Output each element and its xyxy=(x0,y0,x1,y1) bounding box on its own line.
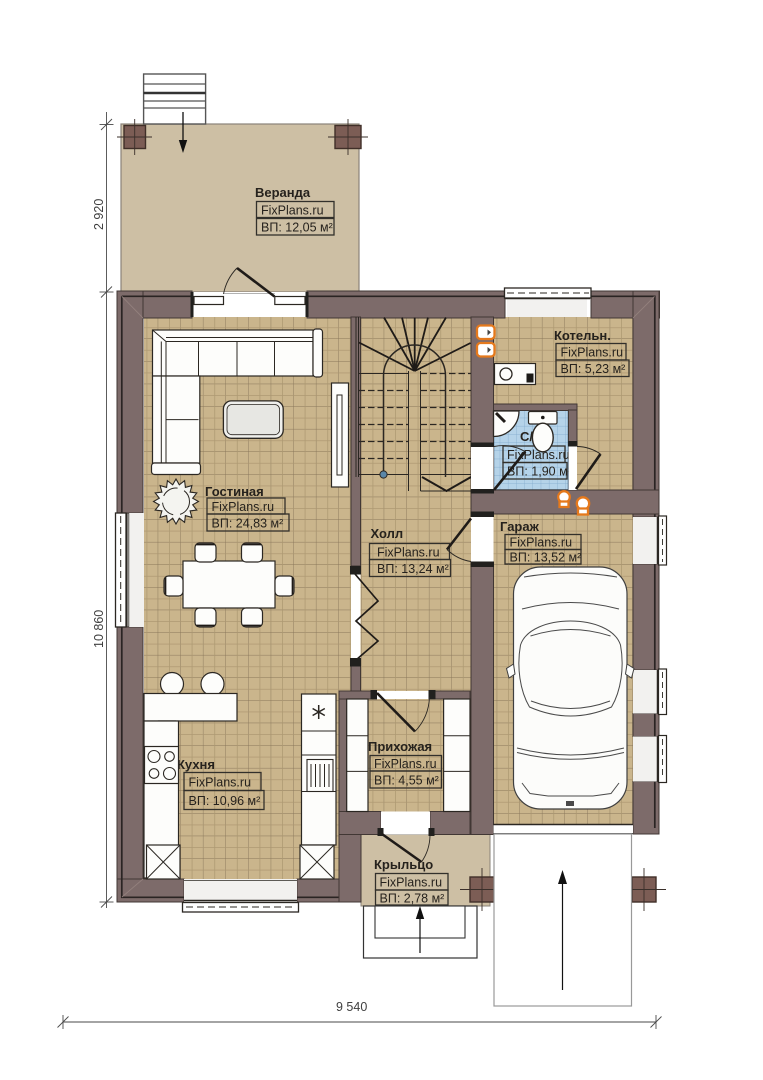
svg-text:FixPlans.ru: FixPlans.ru xyxy=(510,536,573,550)
svg-text:ВП: 12,05 м²: ВП: 12,05 м² xyxy=(261,221,333,235)
svg-text:ВП: 4,55 м²: ВП: 4,55 м² xyxy=(374,774,439,788)
svg-text:Кухня: Кухня xyxy=(177,757,215,772)
svg-text:ВП: 13,52 м²: ВП: 13,52 м² xyxy=(510,551,582,565)
svg-text:Котельн.: Котельн. xyxy=(554,328,611,343)
svg-text:FixPlans.ru: FixPlans.ru xyxy=(374,757,437,771)
svg-text:Прихожая: Прихожая xyxy=(368,739,432,754)
svg-text:ВП: 1,90 м²: ВП: 1,90 м² xyxy=(507,465,572,479)
svg-text:Холл: Холл xyxy=(371,526,404,541)
svg-text:ВП: 10,96 м²: ВП: 10,96 м² xyxy=(189,794,261,808)
svg-text:Гостиная: Гостиная xyxy=(205,484,264,499)
svg-text:FixPlans.ru: FixPlans.ru xyxy=(261,204,324,218)
svg-text:FixPlans.ru: FixPlans.ru xyxy=(189,776,252,790)
svg-text:FixPlans.ru: FixPlans.ru xyxy=(377,546,440,560)
svg-text:9 540: 9 540 xyxy=(336,1000,367,1014)
svg-text:Веранда: Веранда xyxy=(255,185,311,200)
svg-text:FixPlans.ru: FixPlans.ru xyxy=(212,500,275,514)
svg-text:10 860: 10 860 xyxy=(92,610,106,648)
svg-text:ВП: 5,23 м²: ВП: 5,23 м² xyxy=(561,362,626,376)
svg-text:FixPlans.ru: FixPlans.ru xyxy=(561,346,624,360)
svg-text:Гараж: Гараж xyxy=(500,519,540,534)
svg-text:2 920: 2 920 xyxy=(92,199,106,230)
svg-text:FixPlans.ru: FixPlans.ru xyxy=(380,876,443,890)
svg-text:ВП: 13,24 м²: ВП: 13,24 м² xyxy=(377,562,449,576)
svg-text:ВП: 24,83 м²: ВП: 24,83 м² xyxy=(212,517,284,531)
svg-text:Крыльцо: Крыльцо xyxy=(374,857,433,872)
svg-text:ВП: 2,78 м²: ВП: 2,78 м² xyxy=(380,892,445,906)
